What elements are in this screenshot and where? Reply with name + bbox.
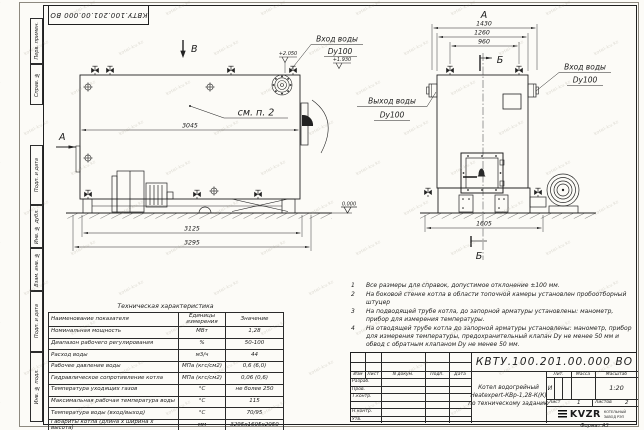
valve-icon	[515, 66, 523, 75]
sheet-value: 1	[577, 400, 581, 406]
row-utv: Утв.	[352, 417, 361, 422]
table-row: Гидравлическое сопротивление котлаМПа (к…	[49, 373, 284, 385]
col-data: Дата	[449, 371, 471, 378]
table-row: Габариты котла (длина х ширина х высота)…	[49, 419, 284, 430]
valve-icon	[91, 66, 99, 75]
side-inlet-dn: Dy100	[328, 47, 353, 56]
note-item: 4На отводящей трубе котла до запорной ар…	[348, 325, 636, 348]
side-view-label-a: А	[58, 132, 66, 143]
dim-1430: 1430	[476, 21, 492, 28]
col-izm: Изм	[351, 371, 365, 378]
lit-value: И	[546, 377, 554, 399]
table-row: Рабочее давление водыМПа (кгс/см2)0,6 (6…	[49, 361, 284, 373]
kvzr-logo-icon	[558, 410, 567, 419]
table-row: Температура воды (вход/выход)°С70/95	[49, 408, 284, 420]
sheets-value: 2	[625, 400, 629, 406]
tech-table-title: Техническая характеристика	[48, 303, 283, 312]
elevation-1930: +1.930	[333, 57, 352, 63]
note-item: 1Все размеры для справок, допустимое отк…	[348, 282, 636, 290]
org-cell: KVZR КОТЕЛЬНЫЙ ЗАВОД РЭП	[546, 406, 638, 423]
scale-value: 1:20	[595, 377, 638, 399]
valve-icon	[193, 190, 201, 199]
dim-1260: 1260	[474, 30, 490, 37]
elevation-0000: 0.000	[342, 202, 356, 208]
titleblock-doc-number: КВТУ.100.201.00.000 ВО	[471, 353, 638, 371]
row-razrab: Разраб.	[352, 379, 370, 384]
note-item: 3На подводящей трубе котла, до запорной …	[348, 308, 636, 324]
tech-table-header: Наименование показателя Единицы измерени…	[49, 313, 284, 327]
row-tkontr: Т.контр.	[352, 394, 372, 399]
mass-label: Масса	[571, 371, 595, 377]
org-name: КОТЕЛЬНЫЙ ЗАВОД РЭП	[604, 410, 626, 418]
table-row: Максимальная рабочая температура воды°С1…	[49, 396, 284, 408]
elevation-2050: +2.050	[279, 51, 298, 57]
dim-3045: 3045	[182, 123, 198, 130]
col-podp: Подп.	[425, 371, 449, 378]
dim-960: 960	[478, 39, 490, 46]
title-block: КВТУ.100.201.00.000 ВО Изм Лист N докум.…	[350, 352, 637, 422]
drawing-sheet: Перв. примен. Справ. № Подп. и дата Инв.…	[0, 0, 644, 430]
section-b-bottom: Б	[476, 251, 483, 262]
front-inlet-label: Вход воды	[564, 63, 606, 72]
sheet-label: Лист	[549, 400, 560, 405]
front-outlet-dn: Dy100	[380, 111, 405, 120]
valve-icon	[424, 188, 432, 197]
front-inlet-dn: Dy100	[573, 76, 598, 85]
row-nkontr: Н.контр.	[352, 409, 372, 414]
dim-3125: 3125	[184, 226, 200, 233]
valve-icon	[106, 66, 114, 75]
valve-icon	[254, 190, 262, 199]
table-row: Номинальная мощностьМВт1,28	[49, 327, 284, 339]
col-ndokum: N докум.	[381, 371, 425, 378]
side-view	[56, 40, 363, 251]
furnace-door	[461, 153, 504, 193]
table-row: Диапазон рабочего регулирования%50-100	[49, 338, 284, 350]
valve-icon	[84, 190, 92, 199]
product-title: Котел водогрейный Heatexpert-КВр-1,28-К(…	[471, 371, 546, 423]
callout-see-note-2: см. п. 2	[238, 108, 275, 119]
side-view-label-b: В	[191, 44, 198, 55]
kvzr-logo-text: KVZR	[570, 409, 601, 420]
front-view-label-a: А	[480, 10, 488, 21]
side-inlet-label: Вход воды	[316, 35, 358, 44]
note-item: 2На боковой стенке котла в области топоч…	[348, 291, 636, 307]
inlet-nozzle-flange	[272, 75, 292, 95]
table-row: Расход водым3/ч44	[49, 350, 284, 362]
sheets-label: Листов	[595, 400, 612, 405]
dim-1605: 1605	[476, 221, 492, 228]
table-row: Температура уходящих газов°Сне более 250	[49, 384, 284, 396]
row-prov: Пров.	[352, 387, 365, 392]
section-b-top: Б	[497, 55, 504, 66]
col-list: Лист	[365, 371, 381, 378]
dim-3295: 3295	[184, 240, 200, 247]
valve-icon	[227, 66, 235, 75]
valve-icon	[534, 188, 542, 197]
notes-list: 1Все размеры для справок, допустимое отк…	[348, 282, 636, 350]
front-outlet-label: Выход воды	[368, 97, 416, 106]
blower-fan	[547, 174, 579, 213]
valve-icon	[446, 66, 454, 75]
format-label: Формат А3	[552, 423, 637, 430]
tech-table: Техническая характеристика Наименование …	[48, 303, 283, 430]
